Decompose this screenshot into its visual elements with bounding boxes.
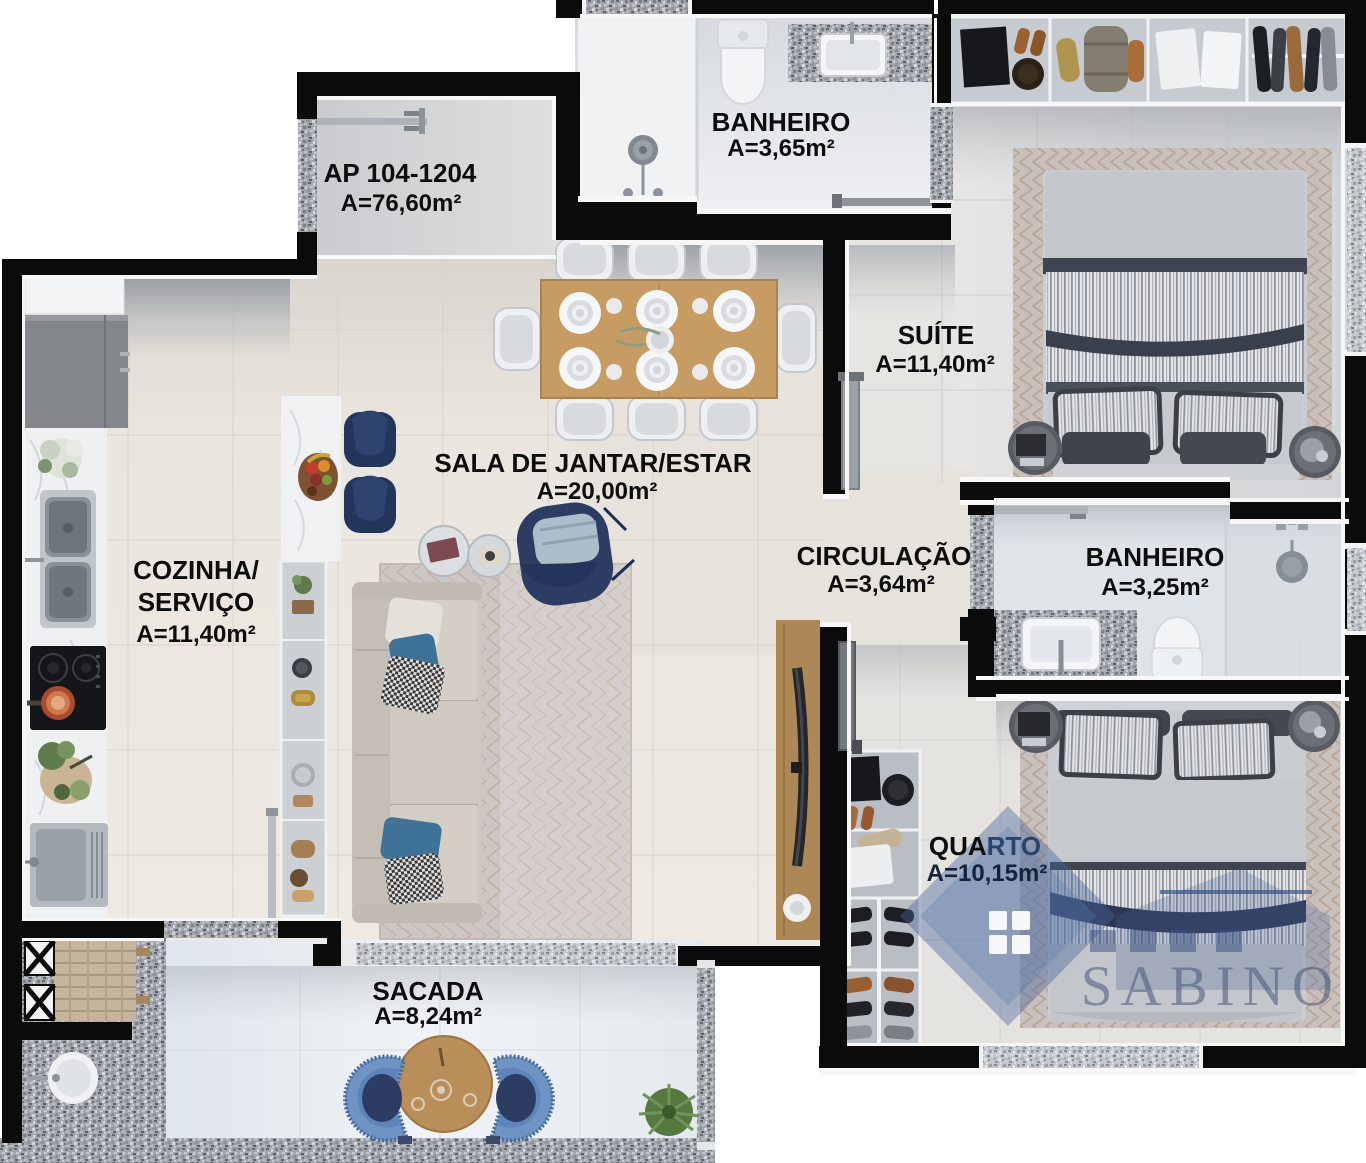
svg-text:A=3,64m²: A=3,64m²	[827, 571, 934, 598]
svg-text:COZINHA/: COZINHA/	[133, 555, 259, 585]
svg-text:SERVIÇO: SERVIÇO	[138, 587, 255, 617]
svg-text:A=76,60m²: A=76,60m²	[341, 190, 462, 217]
svg-text:A=3,65m²: A=3,65m²	[727, 135, 834, 162]
svg-text:SALA DE JANTAR/ESTAR: SALA DE JANTAR/ESTAR	[434, 448, 752, 478]
svg-text:A=3,25m²: A=3,25m²	[1101, 574, 1208, 601]
svg-text:A=11,40m²: A=11,40m²	[136, 621, 255, 648]
svg-text:BANHEIRO: BANHEIRO	[712, 107, 851, 137]
svg-text:CIRCULAÇÃO: CIRCULAÇÃO	[797, 541, 972, 571]
svg-text:AP 104-1204: AP 104-1204	[324, 158, 477, 188]
svg-text:A=10,15m²: A=10,15m²	[927, 860, 1048, 887]
svg-text:A=20,00m²: A=20,00m²	[537, 478, 658, 505]
svg-text:SUÍTE: SUÍTE	[898, 320, 975, 350]
svg-text:A=11,40m²: A=11,40m²	[875, 351, 994, 378]
svg-text:SABINO: SABINO	[1081, 955, 1341, 1018]
svg-text:A=8,24m²: A=8,24m²	[374, 1003, 481, 1030]
svg-text:QUARTO: QUARTO	[929, 831, 1041, 861]
svg-text:BANHEIRO: BANHEIRO	[1086, 542, 1225, 572]
svg-text:SACADA: SACADA	[372, 976, 483, 1006]
